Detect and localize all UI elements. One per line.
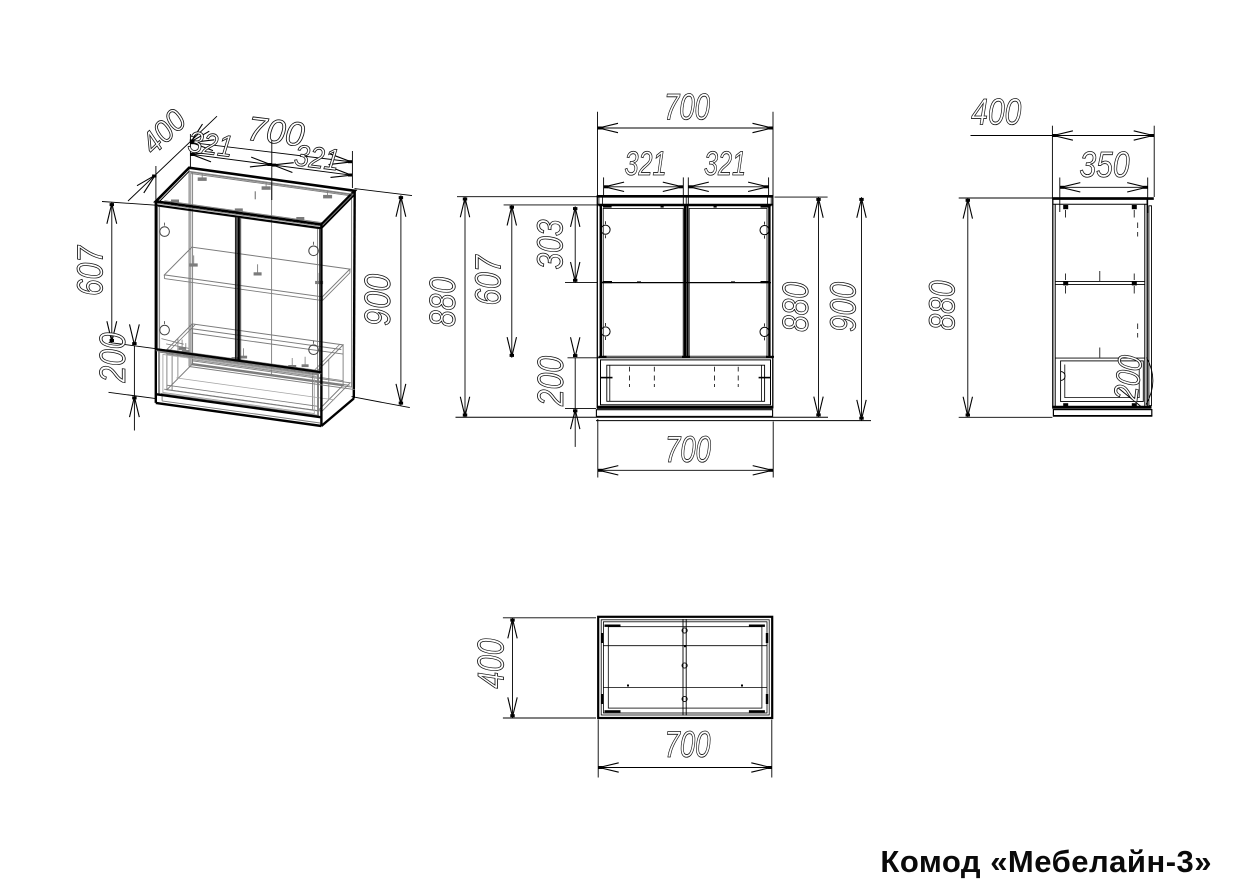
svg-text:880: 880: [921, 281, 962, 331]
svg-text:900: 900: [357, 274, 398, 326]
svg-text:303: 303: [529, 220, 570, 270]
svg-text:400: 400: [471, 638, 512, 688]
svg-text:321: 321: [293, 139, 342, 177]
svg-text:321: 321: [704, 145, 746, 183]
svg-text:607: 607: [69, 244, 110, 296]
svg-text:900: 900: [822, 282, 863, 332]
svg-text:400: 400: [971, 92, 1021, 133]
svg-text:321: 321: [186, 126, 235, 164]
svg-text:607: 607: [467, 254, 508, 306]
svg-text:880: 880: [775, 282, 816, 332]
svg-text:350: 350: [1080, 144, 1130, 185]
svg-text:200: 200: [1107, 353, 1150, 403]
svg-text:700: 700: [664, 87, 710, 128]
svg-text:880: 880: [422, 277, 463, 327]
svg-text:200: 200: [530, 356, 571, 407]
svg-text:200: 200: [92, 333, 133, 384]
svg-text:321: 321: [625, 145, 667, 183]
svg-text:700: 700: [665, 724, 711, 765]
svg-text:700: 700: [665, 429, 711, 470]
svg-text:400: 400: [134, 102, 193, 161]
